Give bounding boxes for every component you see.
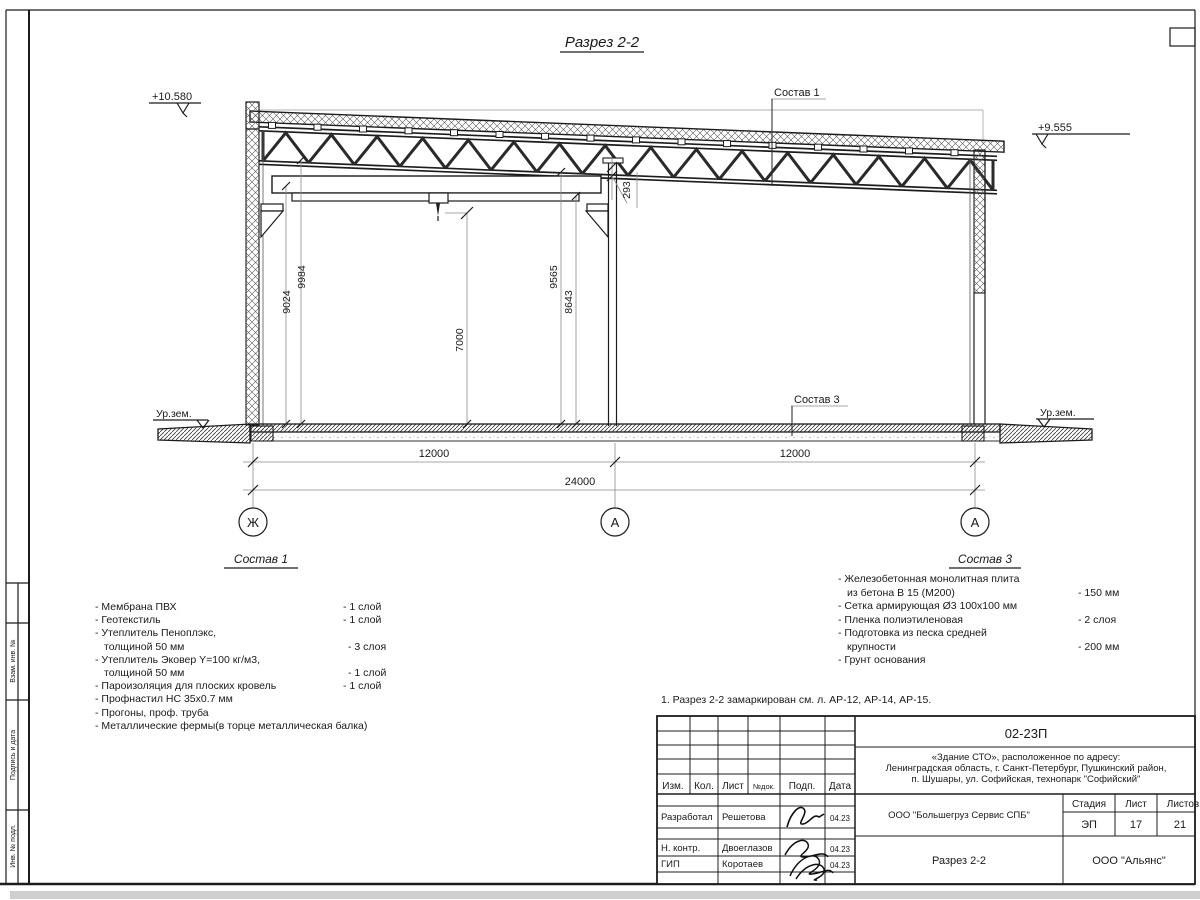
dim-total: 24000 — [565, 476, 596, 488]
left-foundation — [251, 426, 273, 441]
right-foundation — [962, 426, 984, 441]
svg-text:- 1 слой: - 1 слой — [343, 601, 382, 613]
dim-9984: 9984 — [296, 265, 308, 289]
slab-bedding — [250, 432, 1000, 441]
parapet — [246, 102, 259, 129]
svg-text:- Мембрана ПВХ: - Мембрана ПВХ — [95, 601, 177, 613]
col-data: Дата — [829, 781, 852, 792]
drawing-sheet: Взам. инв. № Подпись и дата Инв. № подл.… — [0, 0, 1200, 900]
row2-name: Двоеглазов — [722, 843, 773, 854]
left-bracket — [261, 211, 283, 237]
svg-text:- Сетка армирующая Ø3 100х100: - Сетка армирующая Ø3 100х100 мм — [838, 600, 1017, 612]
col-kol: Кол. — [694, 781, 714, 792]
sostav3-heading: Состав 3 — [958, 552, 1012, 566]
sheet-no-value: 17 — [1130, 819, 1142, 831]
row1-role: Разработал — [661, 812, 713, 823]
dim-span-right: 12000 — [780, 448, 811, 460]
svg-text:- Утеплитель Эковер Y=100 кг/м: - Утеплитель Эковер Y=100 кг/м3, — [95, 654, 260, 666]
svg-text:- Пленка полиэтиленовая: - Пленка полиэтиленовая — [838, 614, 963, 626]
svg-text:- Грунт основания: - Грунт основания — [838, 654, 925, 666]
frame-stamp-inv: Инв. № подл. — [10, 824, 17, 868]
titleblock: 02-23П «Здание СТО», расположенное по ад… — [657, 716, 1199, 884]
slab-concrete — [250, 424, 1000, 432]
drawing-title: Разрез 2-2 — [560, 34, 644, 52]
svg-text:Ур.зем.: Ур.зем. — [156, 408, 192, 420]
elevation-mark-right: +9.555 — [1032, 122, 1130, 148]
sostav3-list: Состав 3 - Железобетонная монолитная пли… — [838, 552, 1119, 666]
svg-text:- 1 слой: - 1 слой — [343, 680, 382, 692]
company-name: ООО "Альянс" — [1092, 855, 1166, 867]
dim-8643: 8643 — [563, 290, 575, 314]
project-line2: Ленинградская область, г. Санкт-Петербур… — [886, 763, 1167, 774]
svg-text:Состав 1: Состав 1 — [774, 87, 820, 99]
svg-text:- 1 слой: - 1 слой — [348, 667, 387, 679]
row3-name: Коротаев — [722, 859, 763, 870]
dim-293: 293 — [621, 181, 633, 199]
sheet-shadow — [10, 891, 1200, 899]
horizontal-dimensions: 12000 12000 24000 Ж А А — [239, 443, 989, 536]
elevation-value-right: +9.555 — [1038, 122, 1072, 134]
sheets-label: Листов — [1167, 799, 1200, 810]
crane-trolley — [429, 193, 448, 203]
section-drawing-svg: Взам. инв. № Подпись и дата Инв. № подл.… — [0, 0, 1200, 900]
col-podp: Подп. — [789, 781, 816, 792]
dim-9565: 9565 — [548, 265, 560, 289]
svg-text:- Металлические фермы(в торце: - Металлические фермы(в торце металличес… — [95, 720, 367, 732]
left-wall — [246, 129, 259, 425]
project-line1: «Здание СТО», расположенное по адресу: — [932, 752, 1121, 763]
svg-text:Ур.зем.: Ур.зем. — [1040, 407, 1076, 419]
note-text: 1. Разрез 2-2 замаркирован см. л. АР-12,… — [661, 694, 931, 706]
stage-value: ЭП — [1081, 819, 1097, 831]
row3-date: 04.23 — [830, 861, 851, 870]
doc-code: 02-23П — [1005, 726, 1048, 741]
row2-date: 04.23 — [830, 845, 851, 854]
svg-text:- Прогоны, проф. труба: - Прогоны, проф. труба — [95, 707, 209, 719]
right-bracket — [586, 211, 608, 237]
svg-text:крупности: крупности — [847, 641, 896, 653]
axis-label-a2: А — [971, 515, 980, 530]
sostav1-heading: Состав 1 — [234, 552, 288, 566]
ground-label-right: Ур.зем. — [1036, 407, 1094, 427]
dim-9024: 9024 — [281, 290, 293, 314]
frame-stamp-vzam: Взам. инв. № — [10, 639, 17, 682]
frame-stamp-podpis: Подпись и дата — [10, 730, 17, 780]
col-izm: Изм. — [662, 781, 683, 792]
right-apron — [1000, 424, 1092, 443]
crane-beam — [261, 176, 608, 237]
svg-text:- 200 мм: - 200 мм — [1078, 641, 1119, 653]
axis-label-zh: Ж — [247, 515, 259, 530]
svg-text:- Железобетонная монолитная п: - Железобетонная монолитная плита — [838, 573, 1020, 585]
svg-text:- 2 слоя: - 2 слоя — [1078, 614, 1116, 626]
walls-columns — [246, 129, 985, 426]
svg-text:- 3 слоя: - 3 слоя — [348, 641, 386, 653]
row3-role: ГИП — [661, 859, 680, 870]
sostav1-list: Состав 1 - Мембрана ПВХ- 1 слой - Геотек… — [95, 552, 387, 732]
ground-label-left: Ур.зем. — [153, 408, 209, 428]
axis-label-a1: А — [611, 515, 620, 530]
project-line3: п. Шушары, ул. Софийская, технопарк "Соф… — [912, 774, 1141, 785]
svg-text:- 150 мм: - 150 мм — [1078, 587, 1119, 599]
svg-text:- Геотекстиль: - Геотекстиль — [95, 614, 161, 626]
svg-text:- Пароизоляция для плоских кро: - Пароизоляция для плоских кровель — [95, 680, 277, 692]
svg-text:толщиной 50 мм: толщиной 50 мм — [104, 667, 184, 679]
row1-date: 04.23 — [830, 814, 851, 823]
stage-label: Стадия — [1072, 799, 1106, 810]
svg-text:- Утеплитель Пеноплэкс,: - Утеплитель Пеноплэкс, — [95, 627, 216, 639]
row2-role: Н. контр. — [661, 843, 700, 854]
col-list: Лист — [722, 781, 744, 792]
corner-box — [1170, 28, 1195, 46]
sheet-label: Лист — [1125, 799, 1147, 810]
page-title: Разрез 2-2 — [565, 34, 640, 51]
svg-text:толщиной 50 мм: толщиной 50 мм — [104, 641, 184, 653]
elevation-value-left: +10.580 — [152, 91, 192, 103]
org-name: ООО "Большегруз Сервис СПБ" — [888, 810, 1030, 821]
row1-name: Решетова — [722, 812, 766, 823]
svg-text:из бетона В 15 (М200): из бетона В 15 (М200) — [847, 587, 955, 599]
sheet-title: Разрез 2-2 — [932, 855, 986, 867]
right-wall — [974, 150, 985, 293]
dim-7000: 7000 — [454, 328, 466, 352]
svg-text:Состав 3: Состав 3 — [794, 394, 840, 406]
sheets-total-value: 21 — [1174, 819, 1186, 831]
svg-text:- Профнастил НС 35х0.7 мм: - Профнастил НС 35х0.7 мм — [95, 693, 233, 705]
crane-hook — [436, 203, 440, 216]
col-ndok: №док. — [753, 782, 775, 791]
dim-span-left: 12000 — [419, 448, 450, 460]
svg-text:- 1 слой: - 1 слой — [343, 614, 382, 626]
elevation-mark-left: +10.580 — [149, 91, 201, 117]
svg-text:- Подготовка из песка средней: - Подготовка из песка средней — [838, 627, 987, 639]
